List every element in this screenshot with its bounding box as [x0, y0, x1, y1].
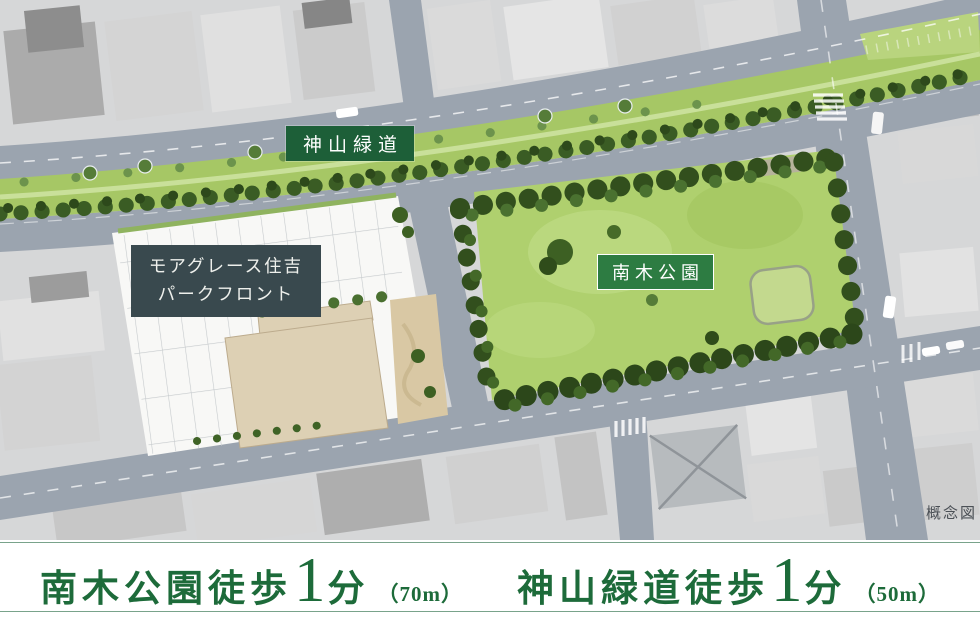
- walk-distance: （70m）: [378, 578, 464, 608]
- walk-place: 南木公園徒歩: [40, 558, 292, 612]
- park-sign-label: 南木公園: [612, 263, 704, 283]
- walk-item-park: 南木公園徒歩 1 分 （70m）: [40, 549, 463, 612]
- distance-banner: 南木公園徒歩 1 分 （70m） 神山緑道徒歩 1 分 （50m）: [0, 540, 980, 617]
- walk-minutes: 1: [771, 549, 803, 612]
- walk-unit: 分: [328, 558, 370, 612]
- concept-diagram-note: 概念図: [926, 502, 977, 523]
- residence-building: [225, 318, 388, 448]
- banner-bottom-rule: [0, 611, 980, 612]
- walk-distance: （50m）: [855, 578, 941, 608]
- park-sign: 南木公園: [597, 254, 714, 290]
- property-sign-line2: パークフロント: [133, 280, 319, 308]
- walk-item-greenway: 神山緑道徒歩 1 分 （50m）: [517, 549, 940, 612]
- walk-unit: 分: [805, 558, 847, 612]
- walk-place: 神山緑道徒歩: [517, 558, 769, 612]
- banner-text: 南木公園徒歩 1 分 （70m） 神山緑道徒歩 1 分 （50m）: [0, 541, 980, 612]
- ball-field: [749, 265, 815, 326]
- greenway-sign-label: 神山緑道: [303, 135, 403, 156]
- property-site: [112, 195, 448, 456]
- site-map: 神山緑道 モアグレース住吉 パークフロント 南木公園 概念図: [0, 0, 980, 540]
- property-sign: モアグレース住吉 パークフロント: [131, 245, 321, 317]
- hip-roof-house: [650, 425, 746, 509]
- greenway-sign: 神山緑道: [286, 126, 414, 161]
- property-sign-line1: モアグレース住吉: [133, 252, 319, 280]
- page: 神山緑道 モアグレース住吉 パークフロント 南木公園 概念図 南木公園徒歩 1 …: [0, 0, 980, 617]
- walk-minutes: 1: [294, 549, 326, 612]
